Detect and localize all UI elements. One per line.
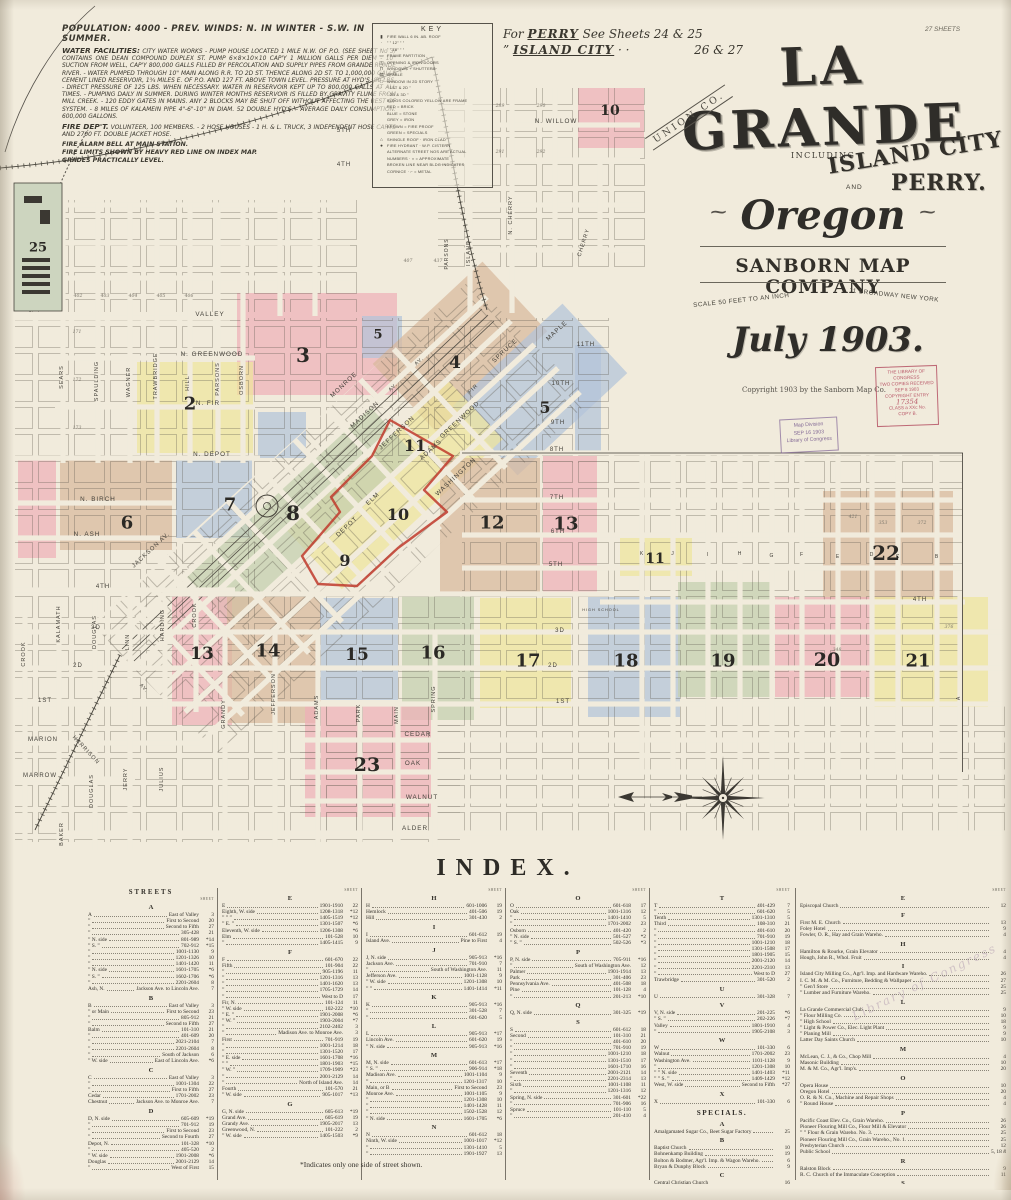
sheet-header: SHEET — [366, 888, 502, 893]
street-label: SPAULDING — [94, 361, 100, 401]
letter-header: A — [654, 1121, 790, 1129]
index-entry: ” Round House4 — [800, 1101, 1006, 1107]
block-number: 289 — [495, 103, 505, 109]
entry-range: West of First — [171, 1165, 199, 1171]
street-label: 1ST — [556, 699, 570, 705]
street-label: 3D — [555, 628, 565, 634]
entry-name: Chestnut — [88, 1099, 107, 1105]
entry-name: ” — [510, 994, 512, 1000]
dot-leader — [370, 971, 428, 972]
dot-leader — [514, 1049, 611, 1050]
entry-name: ” N. side — [366, 1116, 385, 1122]
district-sheet-number: 6 — [121, 512, 134, 533]
district-sheet-number: 18 — [613, 650, 638, 671]
dot-leader — [92, 1126, 179, 1127]
copyright-line: Copyright 1903 by the Sanborn Map Co. — [742, 386, 886, 394]
streets-header: STREETS — [88, 888, 214, 897]
entry-range: Jackson Ave. to Lincoln Ave. — [136, 986, 199, 992]
index-entry: ” W. side1405-1503*9 — [222, 1133, 358, 1139]
dot-leader — [111, 1144, 179, 1145]
dot-leader — [242, 1059, 317, 1060]
letter-header: U — [654, 986, 790, 994]
street-label: MAIN — [394, 706, 400, 724]
index-entry: West, W. sideSecond to Fifth*27 — [654, 1082, 790, 1088]
index-entry: ” S. ”502-526*3 — [510, 940, 646, 946]
street-label: CROOK — [192, 602, 198, 627]
index-entry: ”201-4104 — [510, 1113, 646, 1119]
flourish-icon: ⁓ — [711, 202, 727, 221]
letter-header: K — [366, 994, 502, 1002]
street-label: A — [956, 696, 962, 700]
street-label: SPRING — [431, 685, 437, 712]
street-label: TRAWBRIDGE — [153, 352, 159, 399]
dot-leader — [236, 1016, 318, 1017]
entry-sheet: *6 — [199, 1058, 214, 1064]
street-label: OAK — [405, 760, 421, 767]
block-number: 291 — [495, 149, 505, 155]
street-index: STREETSSHEETAAEast of Valley3”First to S… — [88, 888, 1008, 1188]
index-entry: ”West of First15 — [88, 1165, 214, 1171]
dot-leader — [92, 1150, 179, 1151]
letter-header: I — [366, 924, 502, 932]
street-label: N. WILLOW — [535, 118, 578, 125]
district-sheet-number: 17 — [515, 650, 540, 671]
dot-leader — [226, 1053, 317, 1054]
letter-header: F — [800, 912, 1006, 920]
letter-header: O — [800, 1075, 1006, 1083]
street — [60, 202, 350, 207]
street — [60, 240, 350, 245]
entry-name: Hill — [366, 915, 374, 921]
dot-leader — [226, 1077, 317, 1078]
entry-sheet: 4 — [991, 955, 1006, 961]
street — [60, 830, 1005, 835]
entry-name: D, N. side — [88, 1116, 110, 1122]
street — [462, 532, 962, 537]
street — [22, 600, 27, 850]
dot-leader — [514, 925, 605, 926]
dot-leader — [92, 983, 173, 984]
index-column-2: SHEETEE1901-191022Eighth, W. side1208-13… — [222, 888, 358, 1184]
dot-leader — [226, 991, 317, 992]
index-column-4: SHEETOO601-61817Oak1001-131612”1401-1410… — [510, 888, 646, 1184]
block-number: 372 — [918, 520, 927, 526]
district-sheet-number: 19 — [710, 650, 735, 671]
dot-leader — [514, 919, 605, 920]
street-label: N. DEPOT — [193, 451, 231, 458]
fire-limits-line: FIRE LIMITS SHOWN BY HEAVY RED LINE ON I… — [62, 149, 396, 157]
dot-leader — [246, 1112, 323, 1113]
index-entry: Hill301-4302 — [366, 915, 502, 921]
entry-name: Seventh — [510, 1070, 527, 1076]
entry-name: Latter Day Saints Church — [800, 1037, 855, 1043]
dot-leader — [257, 913, 318, 914]
index-entry: ” N. side905-913*16 — [366, 1044, 502, 1050]
street-label: HARDING — [160, 609, 166, 641]
letter-header: F — [222, 949, 358, 957]
sheet-header: SHEET — [88, 897, 214, 902]
population-line: POPULATION: 4000 - PREV. WINDS: N. IN WI… — [62, 24, 396, 44]
entry-name: X — [654, 1099, 658, 1105]
entry-name: ” W. side — [222, 1092, 242, 1098]
letter-header: W — [654, 1037, 790, 1045]
entry-name: Depot, N. — [88, 1141, 109, 1147]
index-column-5: SHEETTT401-4297”601-6205Tenth1301-13105T… — [654, 888, 790, 1184]
index-column-3: SHEETHH601-100619Hemlock401-50619Hill301… — [366, 888, 502, 1184]
water-facilities: WATER FACILITIES: CITY WATER WORKS - PUM… — [62, 47, 396, 121]
dot-leader — [237, 1022, 317, 1023]
key-label: CORNICE · ⌐ = METAL — [387, 169, 432, 175]
street-label: PARSONS — [215, 362, 221, 396]
dot-leader — [886, 1122, 989, 1123]
entry-sheet: 12 — [991, 903, 1006, 909]
entry-range: 301-520 — [757, 977, 775, 983]
district-sheet-number: 4 — [449, 353, 461, 373]
entry-name: Ash, N. — [88, 986, 105, 992]
entry-range: Pine to First — [461, 938, 487, 944]
entry-sheet: 16 — [775, 1180, 790, 1184]
entry-range: 301-325 — [613, 1010, 631, 1016]
dot-leader — [109, 940, 179, 941]
dot-leader — [370, 1154, 461, 1155]
entry-sheet: 6 — [775, 1099, 790, 1105]
entry-name: Central Christian Church — [654, 1180, 708, 1184]
street — [597, 160, 602, 255]
index-entry: ”1905-21083 — [654, 1029, 790, 1035]
dot-leader — [227, 960, 323, 961]
entry-name: Monroe Ave. — [366, 1091, 394, 1097]
letter-header: E — [222, 895, 358, 903]
fire-dept: FIRE DEP'T. VOLUNTEER, 100 MEMBERS. - 2 … — [62, 123, 396, 139]
dot-leader — [689, 1149, 774, 1150]
dot-leader — [885, 936, 989, 937]
district-sheet-number: 5 — [373, 328, 382, 343]
street — [639, 453, 644, 773]
dot-leader — [370, 1012, 467, 1013]
street-label: N. CHERRY — [508, 195, 514, 234]
index-entry: Q, N. side301-325*19 — [510, 1010, 646, 1016]
street-label: 2D — [73, 663, 83, 669]
letter-header: T — [654, 895, 790, 903]
dot-leader — [524, 944, 611, 945]
index-entry: Amalgamated Sugar Co., Beet Sugar Factor… — [654, 1129, 790, 1135]
dot-leader — [102, 947, 179, 948]
dot-leader — [528, 1037, 611, 1038]
dot-leader — [92, 922, 164, 923]
dot-leader — [372, 1136, 467, 1137]
dot-leader — [514, 1092, 605, 1093]
corner-curl — [993, 1140, 1011, 1190]
street — [799, 453, 804, 773]
letter-header: E — [800, 895, 1006, 903]
dot-leader — [514, 1055, 605, 1056]
street-label: J — [671, 551, 675, 557]
index-entry: ”601-6205 — [366, 1015, 502, 1021]
dot-leader — [238, 1003, 323, 1004]
dot-leader — [521, 913, 606, 914]
entry-range: 1401-1414 — [464, 986, 487, 992]
entry-range: 905-913 — [469, 1044, 487, 1050]
dot-leader — [398, 1076, 462, 1077]
dot-leader — [94, 1078, 167, 1079]
street — [835, 453, 840, 773]
and-label: AND — [846, 184, 863, 191]
index-entry: Ash, N.Jackson Ave. to Lincoln Ave.7 — [88, 986, 214, 992]
street — [670, 453, 675, 773]
index-column-1: STREETSSHEETAAEast of Valley3”First to S… — [88, 888, 214, 1184]
dot-leader — [92, 1138, 159, 1139]
dot-leader — [514, 997, 611, 998]
index-entry: ” W. side905-1017*13 — [222, 1092, 358, 1098]
entry-name: Amalgamated Sugar Co., Beet Sugar Factor… — [654, 1129, 751, 1135]
entry-sheet: 9 — [343, 940, 358, 946]
dot-leader — [832, 1093, 990, 1094]
dot-leader — [830, 988, 989, 989]
entry-name: Bryan & Dunphy Block — [654, 1164, 706, 1170]
entry-name: U — [654, 994, 658, 1000]
entry-name: ” N. side — [366, 1044, 385, 1050]
letter-header: S — [510, 1019, 646, 1027]
street-label: B — [935, 554, 939, 560]
dot-leader — [399, 1142, 462, 1143]
dot-leader — [658, 1068, 749, 1069]
dot-leader — [257, 1131, 323, 1132]
entry-name: ” — [654, 1029, 656, 1035]
dot-leader — [514, 1068, 605, 1069]
dot-leader — [92, 1037, 179, 1038]
dot-leader — [226, 1083, 297, 1084]
street-label: HIGH SCHOOL — [582, 608, 620, 612]
dot-leader — [873, 1058, 989, 1059]
dot-leader — [886, 1029, 989, 1030]
entry-name: ” S. ” — [510, 940, 522, 946]
dot-leader — [668, 1020, 755, 1021]
index-entry: Central Christian Church16 — [654, 1180, 790, 1184]
entry-range: 601-620 — [469, 1015, 487, 1021]
entry-range: 905-1017 — [322, 1092, 343, 1098]
dot-leader — [880, 952, 989, 953]
dot-leader — [370, 1082, 461, 1083]
dot-leader — [705, 1155, 773, 1156]
dot-leader — [753, 1132, 773, 1133]
index-entry: M. & M. Co., Agr'l. Imp's.20 — [800, 1066, 1006, 1072]
dot-leader — [534, 1014, 611, 1015]
entry-sheet: *9 — [343, 1133, 358, 1139]
dot-leader — [92, 1056, 160, 1057]
dot-leader — [514, 1080, 605, 1081]
dot-leader — [92, 959, 173, 960]
index-entry: Episcopal Church12 — [800, 903, 1006, 909]
dot-leader — [865, 1010, 989, 1011]
dot-leader — [92, 934, 179, 935]
street — [127, 204, 132, 463]
entry-range: 1405-1503 — [320, 1133, 343, 1139]
entry-range: East of Lincoln Ave. — [155, 1058, 199, 1064]
entry-name: Madison Ave. — [366, 1072, 396, 1078]
street-label: JEFFERSON — [271, 673, 277, 715]
stamp-line: COPY B. — [879, 410, 937, 418]
district-sheet-number: 13 — [190, 644, 214, 664]
entry-range: 1905-2108 — [752, 1029, 775, 1035]
map-key: KEY ▮FIRE WALL 6 IN. AB. ROOF·” ” 12” ” … — [372, 23, 493, 188]
dot-leader — [527, 1111, 611, 1112]
entry-range: 301-430 — [469, 915, 487, 921]
entry-name: Fowler, O. R., Hay and Grain Wareho. — [800, 932, 883, 938]
block-number: 348 — [833, 647, 842, 653]
dot-leader — [111, 1012, 164, 1013]
entry-sheet: 10 — [991, 1037, 1006, 1043]
dot-leader — [658, 968, 749, 969]
street — [60, 275, 350, 280]
key-title: KEY — [376, 26, 489, 33]
street-label: WALNUT — [406, 794, 438, 801]
street — [277, 204, 282, 316]
entry-name: ” — [88, 1165, 90, 1171]
district-sheet-number: 5 — [539, 398, 550, 417]
letter-header: C — [654, 1172, 790, 1180]
dot-leader — [658, 974, 751, 975]
letter-header: D — [88, 1108, 214, 1116]
index-entry: Island Ave.Pine to First4 — [366, 938, 502, 944]
dot-leader — [109, 1103, 134, 1104]
entry-name: Q, N. side — [510, 1010, 532, 1016]
street-label: BAKER — [59, 822, 65, 846]
dot-leader — [552, 985, 611, 986]
entry-sheet: 15 — [199, 1165, 214, 1171]
street-label: ADAMS — [314, 695, 320, 720]
dot-leader — [107, 990, 135, 991]
column-rule — [795, 888, 796, 1180]
entry-sheet: 9 — [775, 1164, 790, 1170]
sheet-header: SHEET — [800, 888, 1006, 893]
district-sheet-number: 21 — [905, 650, 930, 671]
dot-leader — [660, 997, 755, 998]
entry-name: ” — [366, 1151, 368, 1157]
dot-leader — [230, 1065, 318, 1066]
index-entry: Bryan & Dunphy Block9 — [654, 1164, 790, 1170]
street — [432, 632, 437, 847]
district-sheet-number: 15 — [345, 645, 369, 665]
dot-leader — [896, 1099, 989, 1100]
column-rule — [361, 888, 362, 1180]
stamp-line: Library of Congress — [782, 436, 836, 446]
district-sheet-number: 2 — [184, 393, 197, 414]
entry-range: 502-526 — [613, 940, 631, 946]
column-rule — [505, 888, 506, 1180]
dot-leader — [840, 907, 989, 908]
entry-name: Ninth, W. side — [366, 1138, 397, 1144]
street-label: ALDER — [402, 825, 428, 832]
index-entry: ”1405-14159 — [222, 940, 358, 946]
street — [957, 592, 962, 837]
dot-leader — [226, 1047, 317, 1048]
dot-leader — [396, 965, 467, 966]
letter-header: S — [800, 1180, 1006, 1184]
letter-header: H — [800, 941, 1006, 949]
dot-leader — [392, 942, 458, 943]
entry-sheet: *27 — [775, 1082, 790, 1088]
dot-leader — [108, 1163, 174, 1164]
entry-sheet: 2 — [487, 915, 502, 921]
state-title: ⁓ Oregon ⁓ — [690, 192, 956, 239]
entry-sheet: 5 — [487, 1015, 502, 1021]
dot-leader — [109, 971, 174, 972]
district-sheet-number: 10 — [387, 505, 409, 524]
street — [769, 453, 774, 773]
entry-name: P, N. side — [510, 957, 530, 963]
block-number: 405 — [156, 293, 166, 299]
entry-name: Douglas — [88, 1159, 106, 1165]
dot-leader — [857, 1041, 989, 1042]
street — [170, 591, 610, 596]
entry-name: ” W. side — [88, 1058, 108, 1064]
district-sheet-number: 3 — [296, 343, 310, 367]
letter-header: J — [366, 947, 502, 955]
dot-leader — [226, 944, 317, 945]
dot-leader — [514, 1104, 611, 1105]
dot-leader — [387, 1047, 467, 1048]
dot-leader — [864, 959, 989, 960]
district-sheet-number: 14 — [255, 640, 280, 661]
dot-leader — [658, 1032, 749, 1033]
dot-leader — [110, 1062, 153, 1063]
entry-sheet: 4 — [991, 932, 1006, 938]
index-entry: ” ”1401-1414*11 — [366, 986, 502, 992]
street — [95, 204, 100, 463]
dot-leader — [658, 962, 749, 963]
block-number: 171 — [73, 329, 82, 335]
dot-leader — [92, 1085, 173, 1086]
street-label: 10TH — [552, 381, 571, 387]
entry-sheet: 25 — [991, 990, 1006, 996]
street-label: SEARS — [59, 365, 65, 389]
dot-leader — [388, 959, 467, 960]
dot-leader — [92, 928, 163, 929]
street-label: 4TH — [96, 584, 110, 590]
dot-leader — [396, 1095, 462, 1096]
dot-leader — [226, 973, 320, 974]
letter-header: C — [88, 1067, 214, 1075]
dot-leader — [659, 907, 755, 908]
street — [215, 204, 220, 463]
dot-leader — [658, 938, 755, 939]
dot-leader — [226, 1028, 317, 1029]
letter-header: I — [800, 963, 1006, 971]
street — [895, 453, 900, 773]
entry-range: 301-328 — [757, 994, 775, 1000]
street — [312, 204, 317, 316]
dot-leader — [897, 1175, 989, 1176]
letter-header: B — [654, 1137, 790, 1145]
company-title: SANBORN MAP COMPANY — [686, 256, 960, 298]
letter-header: R — [800, 1158, 1006, 1166]
entry-name: ” ” — [366, 986, 372, 992]
entry-sheet: *19 — [631, 1010, 646, 1016]
block-number: 421 — [848, 514, 858, 520]
index-entry: ” N. side1601-1705*6 — [366, 1116, 502, 1122]
dot-leader — [374, 989, 462, 990]
entry-range: 1405-1415 — [320, 940, 343, 946]
street-label: LINN — [125, 634, 131, 651]
index-entry: Public School5, 18 & 17 — [800, 1149, 1006, 1155]
dot-leader — [370, 1018, 467, 1019]
street — [222, 632, 227, 847]
dot-leader — [388, 983, 462, 984]
street-label: 4TH — [913, 597, 927, 603]
block-number: 376 — [945, 624, 954, 630]
dot-leader — [376, 919, 467, 920]
dot-leader — [523, 1086, 605, 1087]
